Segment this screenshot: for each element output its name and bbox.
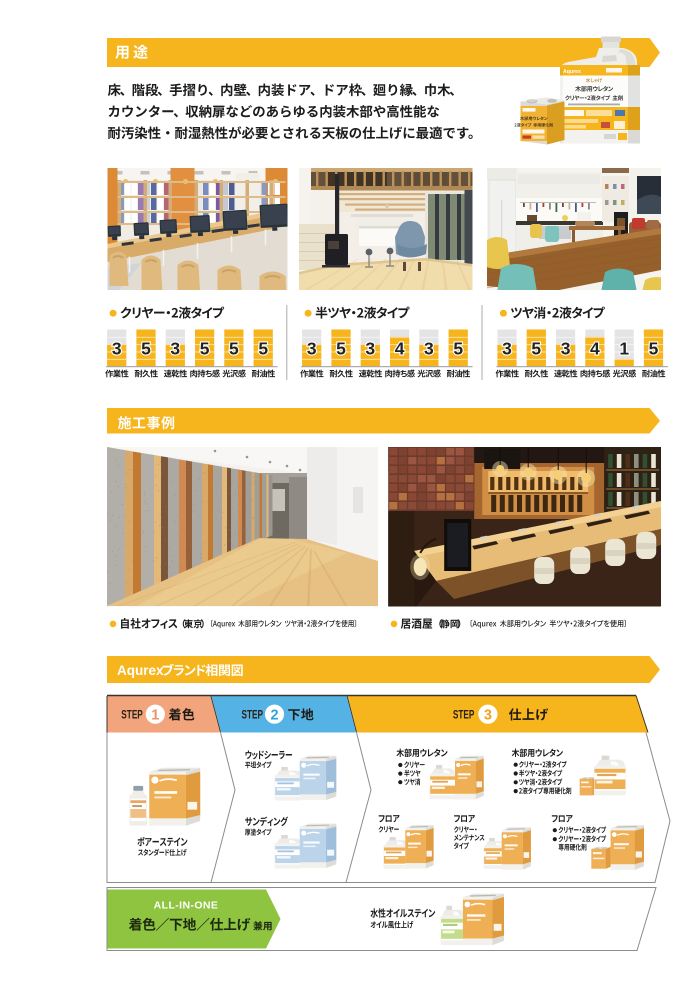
svg-text:5: 5 bbox=[200, 339, 210, 359]
svg-text:STEP: STEP bbox=[453, 709, 475, 721]
svg-text:Aqurex: Aqurex bbox=[563, 69, 581, 75]
svg-text:4: 4 bbox=[395, 339, 405, 359]
svg-text:3: 3 bbox=[484, 707, 492, 723]
svg-text:5: 5 bbox=[649, 339, 659, 359]
svg-text:3: 3 bbox=[424, 339, 434, 359]
svg-text:5: 5 bbox=[229, 339, 239, 359]
svg-text:4: 4 bbox=[590, 339, 600, 359]
svg-text:3: 3 bbox=[170, 339, 180, 359]
svg-text:5: 5 bbox=[141, 339, 151, 359]
svg-text:5: 5 bbox=[336, 339, 346, 359]
svg-text:1: 1 bbox=[619, 339, 629, 359]
svg-text:3: 3 bbox=[307, 339, 317, 359]
svg-text:3: 3 bbox=[112, 339, 122, 359]
svg-text:ALL-IN-ONE: ALL-IN-ONE bbox=[154, 900, 219, 912]
svg-text:STEP: STEP bbox=[242, 709, 264, 721]
svg-text:3: 3 bbox=[365, 339, 375, 359]
svg-text:5: 5 bbox=[531, 339, 541, 359]
svg-text:3: 3 bbox=[561, 339, 571, 359]
svg-text:1: 1 bbox=[151, 707, 159, 723]
svg-text:5: 5 bbox=[258, 339, 268, 359]
svg-text:5: 5 bbox=[453, 339, 463, 359]
svg-text:Aqurex: Aqurex bbox=[117, 663, 164, 678]
svg-text:STEP: STEP bbox=[121, 709, 143, 721]
svg-text:2: 2 bbox=[270, 707, 278, 723]
svg-text:3: 3 bbox=[502, 339, 512, 359]
